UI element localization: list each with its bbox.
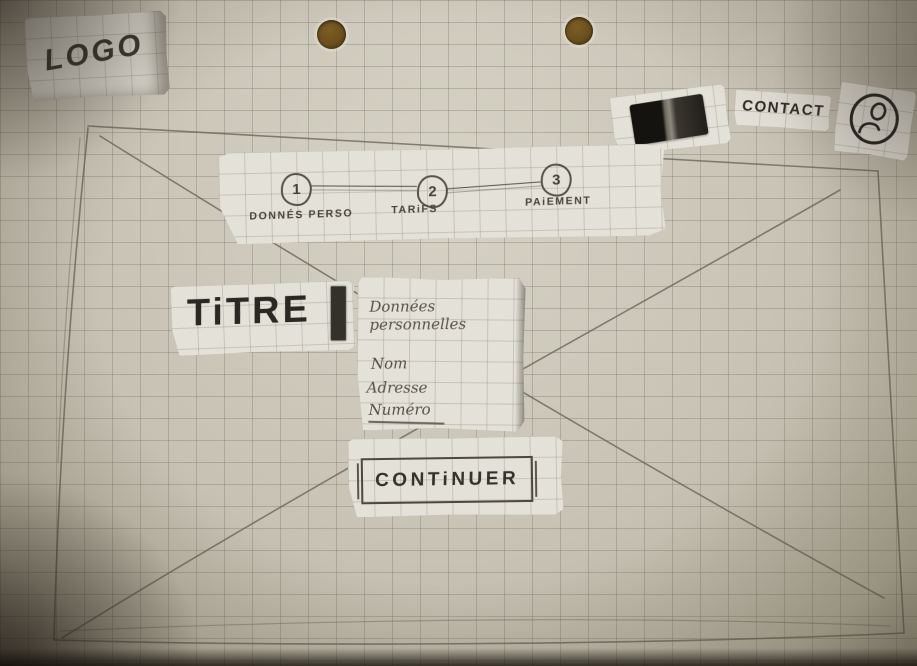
step-number: 3 (552, 172, 561, 189)
step-number: 1 (292, 181, 301, 198)
frame-bottom-line-2 (60, 620, 890, 631)
logo-text: LOGO (42, 28, 147, 79)
account-icon-scrap[interactable] (831, 81, 916, 161)
stepper-connector-1 (310, 185, 417, 191)
contact-button[interactable]: CONTACT (733, 89, 831, 132)
punch-hole-left (317, 20, 346, 49)
punch-hole-right (565, 17, 593, 45)
stepper-step-1-label: DONNÉS PERSO (249, 207, 353, 222)
continue-button-label: CONTiNUER (375, 468, 520, 492)
stepper-step-3-label: PAiEMENT (525, 195, 591, 209)
account-icon (831, 81, 916, 161)
logo-scrap[interactable]: LOGO (24, 10, 170, 101)
form-scrap: Données personnelles Nom Adresse Numéro (356, 276, 525, 431)
frame-left-line (54, 128, 88, 640)
stepper-step-2-label: TARiFS (391, 203, 438, 216)
paper-wireframe-photo: LOGO CONTACT 1 2 3 DONNÉS PERSO TARiFS P… (0, 0, 917, 666)
form-field-nom[interactable]: Nom (371, 354, 408, 372)
stepper-connector-2 (446, 181, 541, 193)
stepper-step-3-circle[interactable]: 3 (540, 163, 572, 197)
form-field-underline (368, 421, 444, 424)
frame-right-line (878, 171, 904, 633)
contact-label: CONTACT (741, 97, 826, 120)
stepper: 1 2 3 DONNÉS PERSO TARiFS PAiEMENT (218, 143, 666, 244)
cart-icon (629, 94, 709, 146)
continue-button[interactable]: CONTiNUER (361, 456, 534, 504)
stepper-step-1-circle[interactable]: 1 (281, 173, 313, 207)
form-heading: Données personnelles (369, 296, 525, 333)
page-title: TiTRE (187, 288, 311, 335)
title-marker-bar (331, 286, 346, 340)
title-scrap: TiTRE (170, 280, 356, 356)
form-field-adresse[interactable]: Adresse (367, 379, 428, 397)
frame-left-line-2 (58, 138, 80, 462)
continue-scrap: CONTiNUER (347, 436, 563, 518)
form-field-numero[interactable]: Numéro (368, 400, 430, 419)
step-number: 2 (428, 183, 437, 200)
frame-bottom-line (55, 633, 904, 644)
